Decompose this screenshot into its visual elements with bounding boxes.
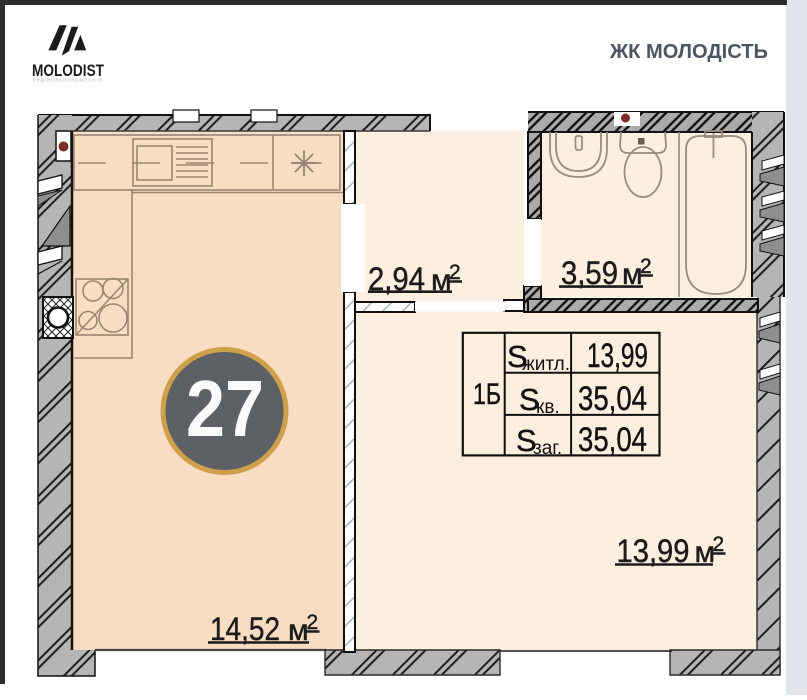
- svg-text:27: 27: [186, 364, 264, 453]
- svg-text:13,99: 13,99: [587, 337, 648, 375]
- svg-text:житл.: житл.: [522, 353, 570, 375]
- svg-text:35,04: 35,04: [578, 421, 647, 459]
- svg-text:Б У Д І В Е Л Ь Н А К О М П: Б У Д І В Е Л Ь Н А К О М П А Н І Я: [33, 78, 102, 83]
- svg-text:1Б: 1Б: [473, 378, 501, 411]
- svg-text:35,04: 35,04: [578, 380, 647, 418]
- svg-text:кв.: кв.: [536, 397, 560, 418]
- svg-text:ЖК МОЛОДІСТЬ: ЖК МОЛОДІСТЬ: [609, 41, 768, 63]
- svg-text:заг.: заг.: [533, 438, 562, 459]
